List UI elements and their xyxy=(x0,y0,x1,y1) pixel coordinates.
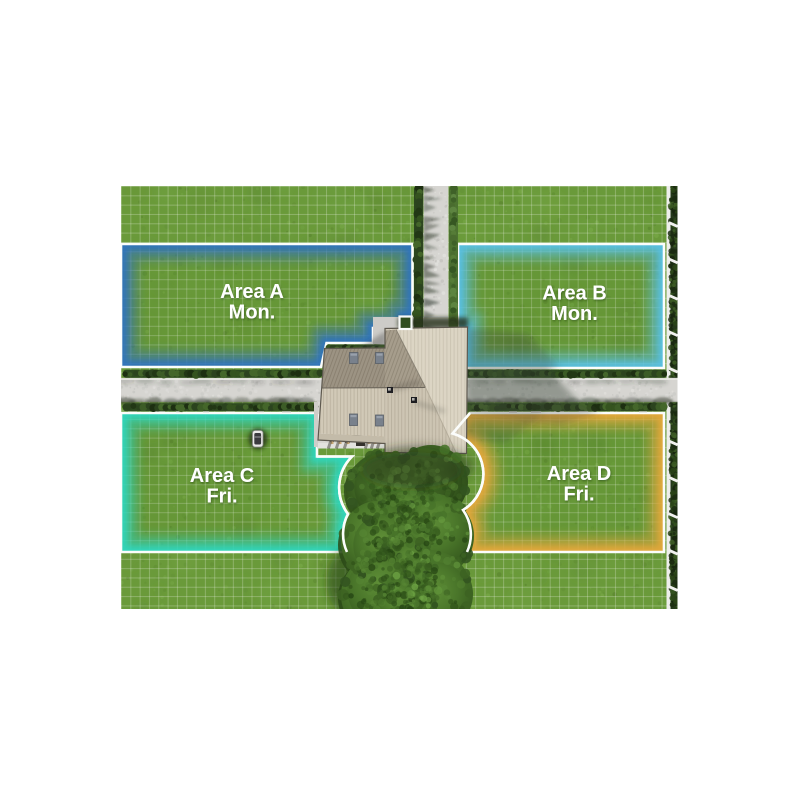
svg-text:Area D: Area D xyxy=(547,463,611,485)
svg-text:Area B: Area B xyxy=(542,283,606,305)
svg-text:Mon.: Mon. xyxy=(551,303,598,325)
svg-text:Fri.: Fri. xyxy=(206,486,237,508)
svg-text:Area A: Area A xyxy=(220,281,284,303)
svg-text:Area C: Area C xyxy=(190,465,254,487)
svg-text:Mon.: Mon. xyxy=(229,302,276,324)
svg-text:Fri.: Fri. xyxy=(563,484,594,506)
